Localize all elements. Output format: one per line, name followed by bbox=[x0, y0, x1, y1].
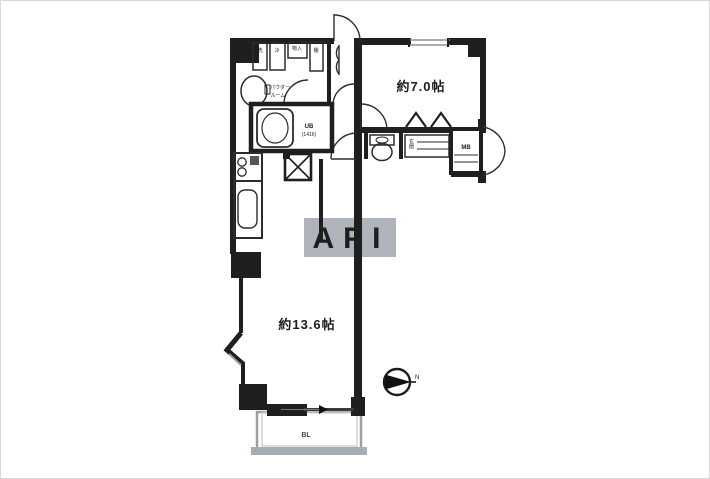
floor-plan-page: API bbox=[0, 0, 710, 479]
wall-main-vertical bbox=[354, 133, 362, 416]
wall-wc-left bbox=[364, 133, 368, 159]
unit-bath-label-2: (1416) bbox=[302, 132, 317, 138]
storage-4-label: 棚 bbox=[313, 47, 318, 54]
wall-bedroom-right bbox=[480, 38, 486, 123]
storage-2-label: 冷 bbox=[274, 47, 279, 54]
unit-bath-label-1: UB bbox=[305, 124, 314, 130]
watermark-text: API bbox=[312, 222, 389, 255]
bedroom-label: 約7.0帖 bbox=[396, 79, 445, 94]
wall-top-door-jamb bbox=[324, 38, 334, 44]
wall-left-upper bbox=[239, 278, 243, 333]
balcony-edge-band bbox=[251, 447, 367, 455]
wall-left-column-mid bbox=[231, 252, 261, 278]
wall-wc-right bbox=[399, 133, 403, 159]
wall-left-lower bbox=[241, 362, 245, 386]
compass-north-label: N bbox=[415, 375, 419, 381]
entrance-label: 玄関 bbox=[408, 138, 414, 150]
living-room-label: 約13.6帖 bbox=[278, 317, 335, 332]
unit-bath bbox=[251, 104, 332, 151]
powder-room-label-1: パウダー bbox=[270, 84, 290, 91]
stove-grill-icon bbox=[250, 156, 259, 165]
powder-room-label-2: ルーム bbox=[271, 93, 286, 99]
watermark: API bbox=[304, 218, 396, 257]
storage-1-label: 洗 bbox=[257, 47, 262, 54]
meter-box: MB bbox=[451, 129, 481, 173]
wall-strip-left bbox=[327, 44, 331, 105]
wall-bottomleft-column bbox=[239, 384, 267, 410]
wall-bedroom-top-left bbox=[357, 38, 411, 45]
storage-3-label: 物入 bbox=[292, 45, 302, 52]
wall-bottomright-column bbox=[351, 397, 365, 416]
meter-box-label: MB bbox=[461, 145, 471, 151]
floor-plan-canvas: API bbox=[1, 1, 710, 479]
balcony-label: BL bbox=[301, 432, 311, 439]
wall-kitchen-partition bbox=[319, 159, 323, 241]
